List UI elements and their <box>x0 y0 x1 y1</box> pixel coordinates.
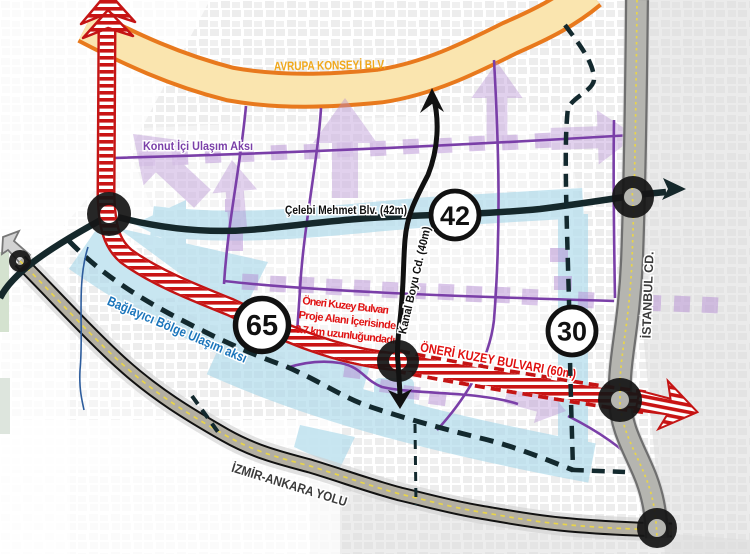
svg-text:30: 30 <box>557 317 587 347</box>
svg-text:Çelebi Mehmet Blv. (42m): Çelebi Mehmet Blv. (42m) <box>285 205 407 217</box>
svg-text:42: 42 <box>440 201 470 231</box>
svg-text:65: 65 <box>246 310 278 342</box>
svg-text:İSTANBUL CD.: İSTANBUL CD. <box>638 251 656 339</box>
svg-text:Konut İçi Ulaşım Aksı: Konut İçi Ulaşım Aksı <box>143 140 253 153</box>
svg-text:AVRUPA KONSEYİ BLV.: AVRUPA KONSEYİ BLV. <box>274 57 386 74</box>
